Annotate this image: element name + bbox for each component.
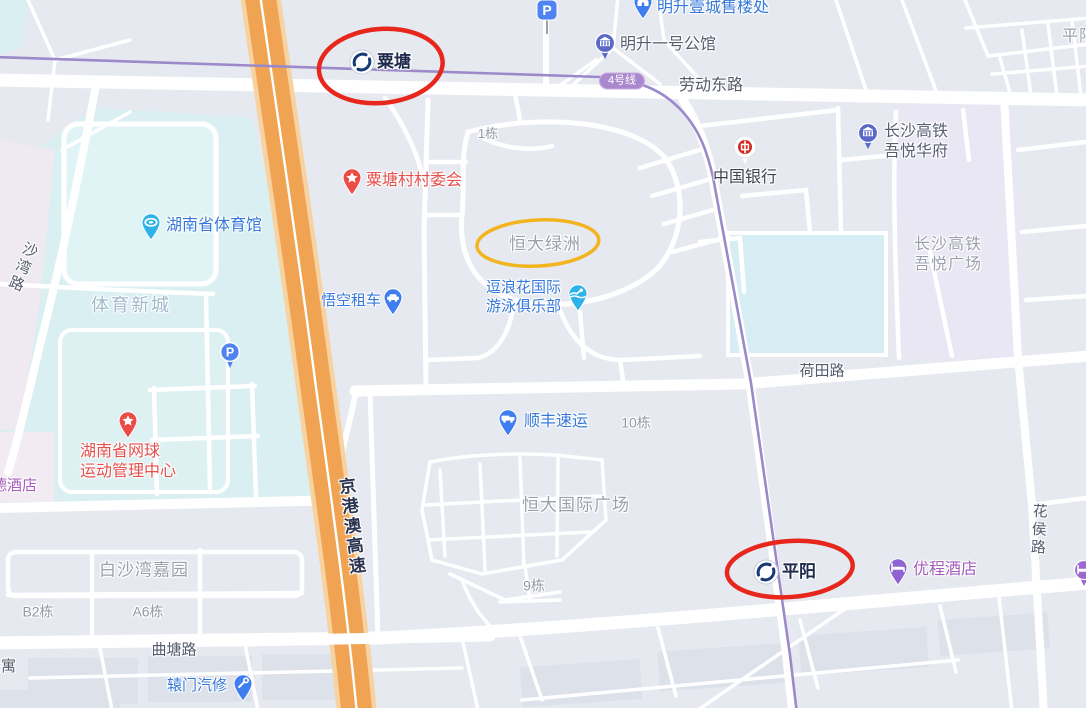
area-hengda-lvzhou: 恒大绿洲	[509, 233, 581, 254]
poi-dejiudian-partial: 德酒店	[0, 477, 37, 496]
poi-mingsheng-yihao-gongguan-label: 明升一号公馆	[620, 35, 716, 55]
bed-icon[interactable]	[1072, 559, 1086, 592]
star-icon[interactable]	[116, 410, 140, 445]
bld-10dong: 10栋	[621, 414, 651, 432]
stadium-icon[interactable]	[139, 212, 163, 247]
metro-line-4-badge: 4号线	[599, 73, 645, 90]
star-icon[interactable]	[340, 167, 364, 202]
bld-a6dong: A6栋	[132, 603, 163, 621]
area-hengda-guoji-guangchang: 恒大国际广场	[522, 494, 630, 515]
boc-icon[interactable]	[733, 136, 757, 171]
poi-hunan-gymnasium-label: 湖南省体育馆	[166, 216, 262, 236]
area-pingyang-partial: 平阳	[1062, 27, 1086, 47]
bld-1dong: 1栋	[478, 126, 498, 142]
p-icon[interactable]: P	[535, 0, 559, 41]
car-icon[interactable]	[381, 287, 405, 322]
road-hetianlu: 荷田路	[799, 363, 844, 382]
poi-wukong-car-rental-label: 悟空租车	[321, 292, 381, 311]
building-icon[interactable]	[593, 32, 617, 65]
station-sutang-label: 粟塘	[377, 51, 411, 72]
bld-9dong: 9栋	[523, 577, 545, 595]
swim-icon[interactable]	[566, 283, 590, 318]
svg-text:P: P	[542, 2, 551, 18]
map-canvas[interactable]: 劳动东路荷田路曲塘路沙湾路花侯路京港澳高速公寓体育新城白沙湾嘉园恒大绿洲恒大国际…	[0, 0, 1086, 708]
area-changsha-gaotie-wuyue-guangchang: 长沙高铁吾悦广场	[914, 235, 982, 275]
area-baishawan-jiayuan: 白沙湾嘉园	[99, 559, 189, 580]
p-icon[interactable]: P	[219, 342, 241, 375]
road-qutanglu: 曲塘路	[151, 642, 196, 661]
building-icon[interactable]	[856, 122, 880, 155]
label-gongyu-partial: 公寓	[0, 658, 16, 677]
station-pingyang-label: 平阳	[782, 561, 816, 582]
poi-mingsheng-yicheng-sales-label: 明升壹城售楼处	[657, 0, 769, 18]
metro-logo-icon[interactable]	[753, 559, 779, 590]
road-shawanlu: 沙湾路	[3, 238, 41, 295]
poi-sutang-village-committee-label: 粟塘村村委会	[366, 171, 462, 191]
metro-logo-icon[interactable]	[349, 49, 375, 80]
road-huahoulu: 花侯路	[1027, 503, 1049, 558]
poi-hunan-tennis-center-label: 湖南省网球运动管理中心	[80, 442, 176, 482]
poi-youcheng-hotel-label: 优程酒店	[913, 560, 977, 580]
truck-icon[interactable]	[496, 408, 520, 443]
bed-icon[interactable]	[886, 557, 910, 592]
poi-bank-of-china-label: 中国银行	[713, 168, 777, 188]
poi-wuyue-huafu-label: 长沙高铁吾悦华府	[884, 122, 948, 162]
poi-doulanghua-swim-club-label: 逗浪花国际游泳俱乐部	[486, 279, 561, 317]
tools-icon[interactable]	[231, 673, 255, 708]
poi-yuanmen-auto-repair-label: 辕门汽修	[167, 677, 227, 696]
poi-sf-express-label: 顺丰速运	[524, 412, 588, 432]
bld-b2dong: B2栋	[22, 603, 53, 621]
house-icon[interactable]	[631, 0, 655, 26]
road-jinggangao-expressway: 京港澳高速	[334, 476, 367, 578]
area-tiyuxincheng: 体育新城	[91, 294, 171, 317]
map-overlay: 劳动东路荷田路曲塘路沙湾路花侯路京港澳高速公寓体育新城白沙湾嘉园恒大绿洲恒大国际…	[0, 0, 1086, 708]
road-laodongdonglu: 劳动东路	[679, 76, 743, 96]
svg-text:P: P	[226, 346, 234, 360]
